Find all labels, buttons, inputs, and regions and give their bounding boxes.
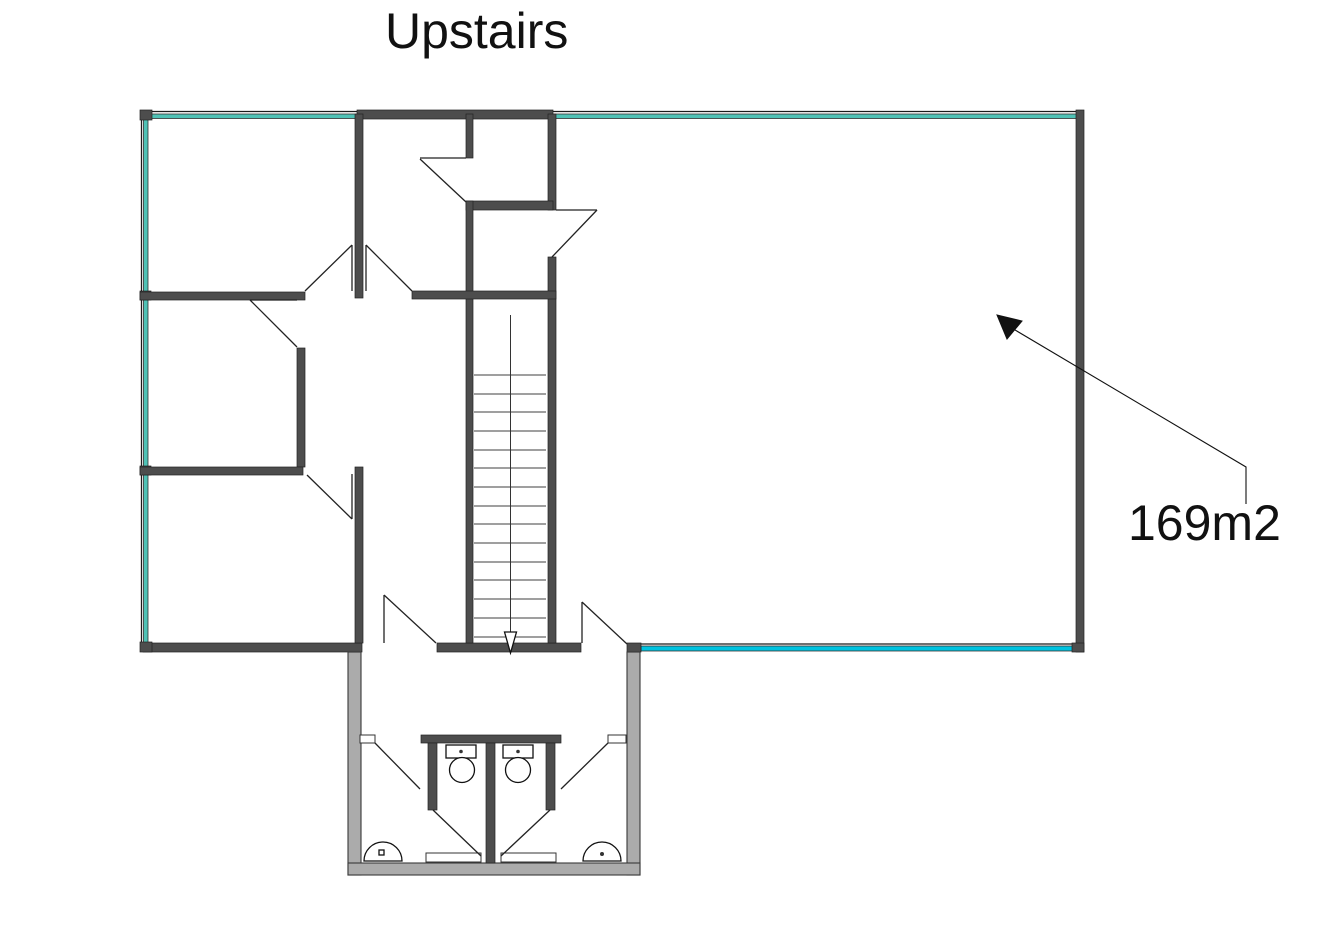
jamb-left	[360, 735, 375, 743]
leader-arrowhead-icon	[997, 315, 1022, 339]
wall-bedroom3-right	[355, 467, 363, 643]
doors	[250, 158, 627, 644]
window-band-top-left	[143, 114, 357, 119]
area-label: 169m2	[1128, 495, 1281, 551]
wall-bedroom2-right	[297, 348, 305, 467]
toilet-icon	[446, 745, 476, 783]
interior-walls	[140, 114, 556, 643]
leader-line	[1010, 327, 1246, 504]
door-hall-right	[582, 602, 627, 644]
door-closet-lower	[552, 210, 597, 257]
floor-title: Upstairs	[385, 3, 568, 59]
door-room-top-center	[366, 245, 412, 291]
door-closet-top	[420, 158, 466, 202]
wall-stalls-top	[421, 735, 561, 743]
wall-closet-right-top	[548, 114, 556, 210]
window-band-top-right	[553, 114, 1077, 119]
wall-bedroom1-divider	[355, 114, 363, 298]
floor-plan: Upstairs 169m2	[0, 0, 1328, 944]
wall-bedroom1-bottom	[140, 292, 305, 300]
wall-right	[1076, 110, 1084, 652]
floor-plan-page: Upstairs 169m2	[0, 0, 1328, 944]
corner-bottom-right	[1072, 643, 1084, 652]
area-leader-arrow	[997, 315, 1246, 504]
sink-icon	[364, 842, 402, 861]
wall-stall-center	[486, 743, 495, 863]
wall-closet-divider	[466, 201, 553, 210]
door-bedroom1	[305, 245, 352, 291]
wall-bottom-jamb	[627, 643, 641, 652]
wall-top-middle	[357, 110, 553, 119]
sink-icon	[583, 842, 621, 861]
exterior-walls	[140, 110, 1084, 652]
toilet-icon	[503, 745, 533, 783]
wall-stair-left	[466, 201, 473, 643]
wall-bedroom2-bottom	[140, 467, 303, 475]
wall-stall-left	[428, 743, 437, 810]
wall-bottom-left	[143, 643, 362, 652]
corner-bottom-left	[140, 642, 152, 652]
jamb-right	[608, 735, 626, 743]
window-band-bottom-right	[641, 646, 1076, 651]
door-vestibule-left	[375, 743, 420, 789]
wall-stall-right	[546, 743, 555, 810]
wall-closet-top-stub	[466, 114, 473, 158]
ext-wall-right	[627, 652, 640, 875]
ext-wall-bottom	[348, 863, 640, 875]
bathroom-block	[348, 652, 640, 875]
corner-top-left	[140, 110, 152, 120]
windows	[142, 111, 1078, 651]
threshold-left-stall	[426, 853, 481, 862]
door-hall-left	[384, 595, 436, 643]
window-band-left	[144, 115, 149, 645]
door-stall-right	[501, 810, 550, 856]
door-bedroom3	[307, 474, 352, 519]
door-stall-left	[433, 810, 481, 856]
ext-wall-left	[348, 652, 361, 875]
wall-stair-top	[412, 291, 556, 299]
door-bedroom2	[250, 300, 297, 347]
wall-stair-right	[548, 257, 556, 643]
staircase	[474, 315, 546, 653]
door-vestibule-right	[561, 743, 608, 789]
threshold-right-stall	[501, 853, 556, 862]
